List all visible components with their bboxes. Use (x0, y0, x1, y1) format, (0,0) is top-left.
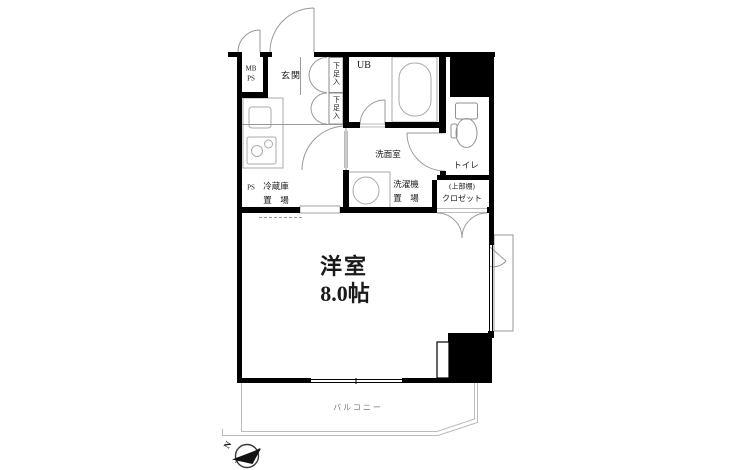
pipe-space-label: PS (247, 185, 255, 192)
closet-shelf-note: (上部棚) (449, 184, 475, 191)
walls (228, 52, 495, 383)
closet-door-right-swing (462, 213, 487, 238)
bath-fixtures (392, 57, 437, 122)
fridge-space-label-line1: 冷蔵庫 (263, 182, 289, 191)
shoebox1-doors (309, 57, 327, 92)
toilet-bowl (456, 119, 477, 148)
toilet-tank (456, 103, 478, 119)
main-room-size-label: 8.0帖 (320, 283, 370, 305)
laundry-fixtures (348, 172, 390, 208)
kitchen-opening (300, 206, 340, 213)
bath-door-swing (360, 100, 385, 125)
toilet-door-swing (407, 133, 445, 171)
window-bay (494, 235, 513, 331)
shoe-storage-label-2: 下足入 (333, 96, 340, 120)
burner-large (252, 146, 263, 157)
pipe-space-top-label: PS (247, 76, 255, 83)
washroom-door-swing (302, 126, 346, 170)
washroom-label: 洗面室 (375, 150, 401, 159)
unit-bath-label: UB (357, 61, 371, 71)
shoebox2-doors (311, 93, 327, 124)
closet-door-left-swing (437, 213, 462, 238)
bathtub-icon (399, 63, 431, 116)
entrance-label: 玄関 (281, 72, 301, 81)
shoe-storage-label-1: 下足入 (333, 62, 340, 86)
pillar-top-right (450, 57, 490, 97)
main-room-label: 洋室 (320, 256, 368, 278)
burner-small (265, 140, 273, 148)
pillar-notch (437, 342, 449, 378)
washing-machine-icon (353, 177, 379, 204)
toilet-label: トイレ (453, 161, 479, 170)
washer-space-label-line2: 置 場 (393, 194, 419, 203)
washer-space-label-line1: 洗濯機 (393, 180, 419, 189)
meterbox-door-swing (238, 30, 260, 52)
kitchen-fixtures (243, 98, 283, 168)
meter-box-label: MB (246, 66, 257, 73)
toilet-fixture (451, 103, 478, 148)
closet-label: クロゼット (442, 195, 482, 203)
entrance-door-swing (270, 8, 314, 52)
fridge-space-label-line2: 置 場 (263, 196, 289, 205)
pillar-bottom-right (448, 338, 492, 378)
floorplan: MB PS 玄関 下足入 下足入 UB 洗面室 トイレ (上部棚) クロゼット … (0, 0, 730, 470)
compass-icon (232, 445, 261, 468)
balcony-label: バルコニー (333, 404, 383, 412)
